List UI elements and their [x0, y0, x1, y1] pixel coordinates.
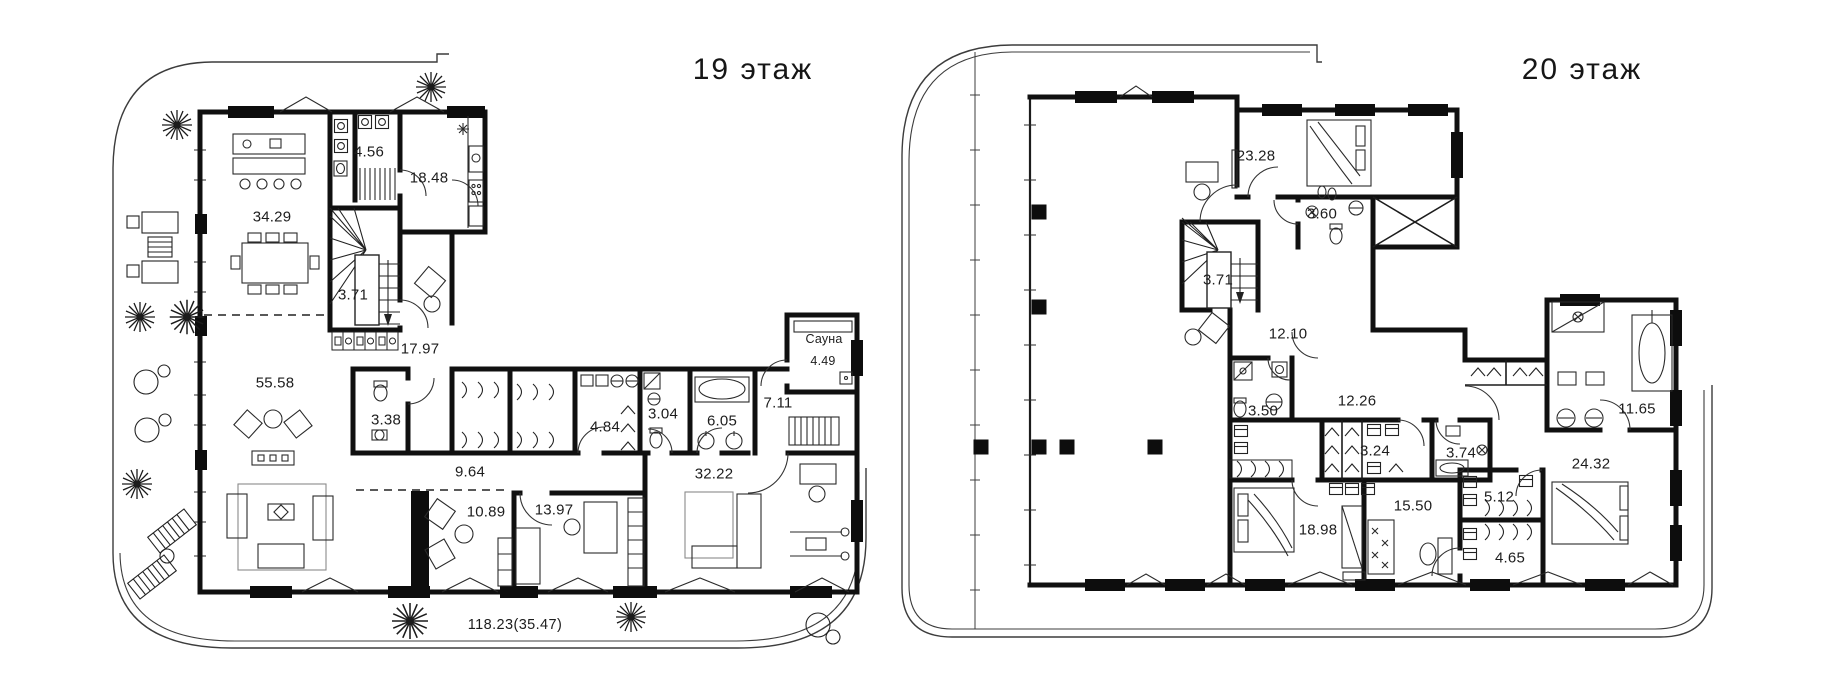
floor-20-title: 20 этаж — [1522, 53, 1643, 87]
room-label-19-bathroom: 6.05 — [707, 414, 737, 429]
stairs-19-glyph — [330, 208, 400, 326]
room-label-19-living: 55.58 — [256, 376, 295, 391]
room-label-19-sauna-name: Сауна — [805, 333, 842, 346]
room-label-19-wc: 3.38 — [371, 413, 401, 428]
room-label-20-bathroom3: 3.74 — [1446, 446, 1476, 461]
floor-plans-drawing — [0, 0, 1835, 699]
room-label-20-wardrobe3: 4.65 — [1495, 551, 1525, 566]
floor-19-title: 19 этаж — [693, 53, 814, 87]
room-label-19-cabinet2: 13.97 — [535, 503, 574, 518]
room-label-19-kitchen-dining: 34.29 — [253, 210, 292, 225]
room-label-19-stairs: 3.71 — [338, 288, 368, 303]
room-label-20-hall: 12.10 — [1269, 327, 1308, 342]
room-label-20-master-bath: 11.65 — [1618, 402, 1655, 417]
room-label-20-bedroom2: 18.98 — [1299, 523, 1338, 538]
terrace-label-19: 118.23(35.47) — [468, 618, 562, 633]
room-label-19-bedroom: 32.22 — [695, 467, 734, 482]
room-label-20-bedroom1: 23.28 — [1237, 149, 1276, 164]
room-label-19-laundry: 4.84 — [590, 420, 620, 435]
floor-19-group — [113, 54, 866, 648]
room-label-19-kitchen: 18.48 — [410, 171, 449, 186]
room-label-19-bathroom-top: 4.56 — [354, 145, 384, 160]
room-label-20-stairs: 3.71 — [1203, 273, 1233, 288]
room-label-19-cabinet1: 10.89 — [467, 505, 506, 520]
room-label-20-master-bedroom: 24.32 — [1572, 457, 1611, 472]
room-label-19-shower: 3.04 — [648, 407, 678, 422]
room-label-20-hall2: 15.50 — [1394, 499, 1433, 514]
room-label-20-wardrobe1: 3.24 — [1360, 444, 1390, 459]
room-label-20-bathroom1: 3.60 — [1307, 207, 1337, 222]
stairs-20-glyph — [1182, 218, 1258, 308]
room-label-20-bathroom2: 3.50 — [1248, 404, 1278, 419]
floor-plans-canvas: 19 этаж 20 этаж 34.29 4.56 18.48 3.71 17… — [0, 0, 1835, 699]
room-label-19-sauna-area: 4.49 — [810, 355, 835, 368]
room-label-19-hall: 17.97 — [401, 342, 440, 357]
room-label-19-corridor: 9.64 — [455, 465, 485, 480]
room-label-20-corridor: 12.26 — [1338, 394, 1377, 409]
room-label-19-rest: 7.11 — [764, 396, 793, 411]
room-label-20-wardrobe2: 5.12 — [1484, 490, 1514, 505]
